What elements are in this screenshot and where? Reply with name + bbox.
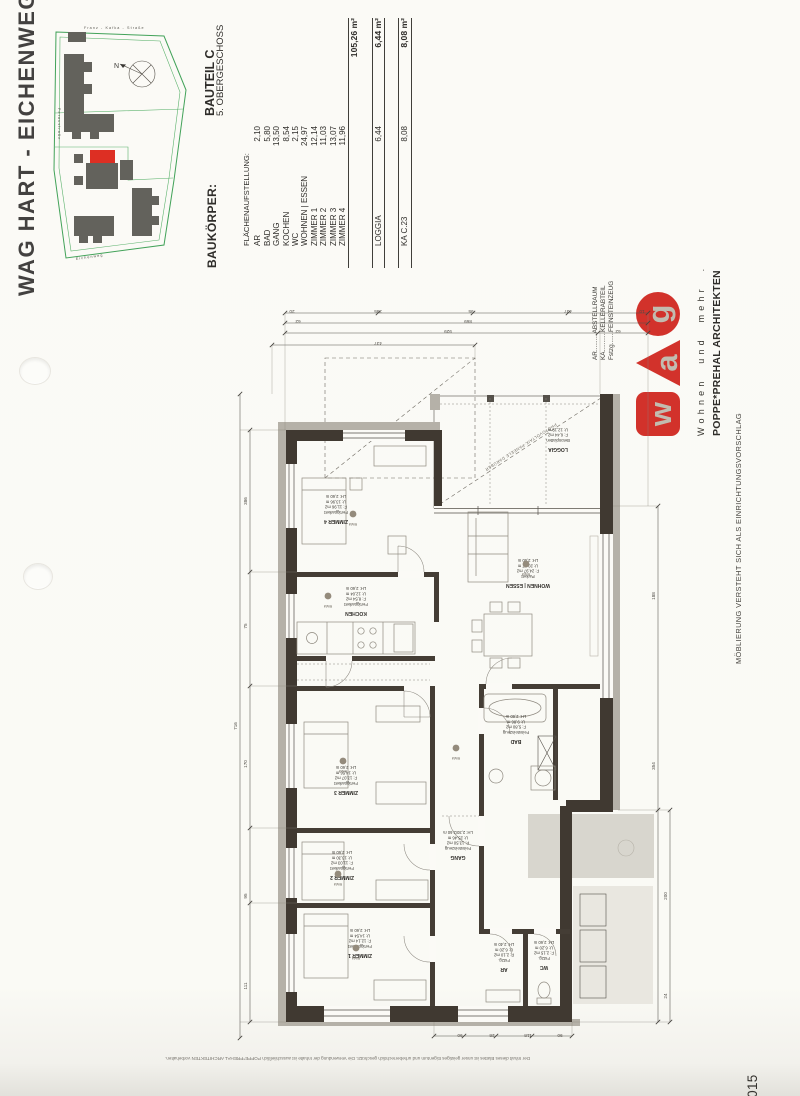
divider [398, 18, 399, 268]
svg-text:929: 929 [444, 329, 452, 334]
svg-text:869: 869 [464, 319, 472, 324]
site-plan: N Franz - Kafka - Straße Peraustraße Eic… [46, 20, 196, 270]
svg-text:RWM: RWM [452, 756, 461, 760]
area-total-row: 105,26 m² [350, 18, 359, 268]
svg-text:386: 386 [243, 497, 248, 505]
room-label-bad: BADFeinsteinzeugF: 5,80 m2U: 9,86 mLH: 2… [502, 714, 529, 744]
street-label: Eichenweg [76, 253, 104, 261]
svg-text:RWM: RWM [334, 882, 343, 886]
svg-text:LH: 2,60 m: LH: 2,60 m [345, 586, 366, 591]
area-row: BAD5,80 [263, 18, 272, 268]
room-label-loggia: LOGGIABetonplattenF: 6,44 m2U: 12,19 m [546, 427, 570, 452]
street-label: Peraustraße [57, 108, 61, 140]
svg-text:10: 10 [639, 309, 645, 314]
svg-text:90: 90 [457, 1033, 463, 1038]
svg-text:LH: 2,40 m: LH: 2,40 m [493, 942, 514, 947]
svg-text:95: 95 [243, 893, 248, 899]
svg-text:24: 24 [663, 993, 668, 999]
site-building [74, 188, 159, 243]
smoke-detector-icon: RWM [452, 745, 461, 760]
area-row: GANG13,50 [272, 18, 281, 268]
footer: ÄNDERUNGEN VORBEHALTEN M=1:75 RAUMFLÄCHE… [732, 1020, 778, 1096]
door-swing [326, 546, 556, 962]
svg-text:75: 75 [243, 623, 248, 629]
svg-text:LH: 2,60 m: LH: 2,60 m [505, 714, 526, 719]
room-label-kochen: KOCHENFertigparkettF: 8,54 m2U: 12,04 mL… [343, 586, 367, 616]
area-total: 105,26 m² [350, 18, 359, 126]
svg-text:ZIMMER 3: ZIMMER 3 [334, 789, 358, 795]
svg-text:RWM: RWM [349, 522, 358, 526]
svg-text:20: 20 [289, 309, 295, 314]
svg-text:LH: 2,60 m: LH: 2,60 m [533, 940, 554, 945]
svg-text:RWM: RWM [339, 769, 348, 773]
svg-text:LH: 2,30/2,60 m: LH: 2,30/2,60 m [443, 830, 473, 835]
room-label-zimmer2: ZIMMER 2FertigparkettF: 11,03 m2U: 13,30… [329, 850, 354, 880]
svg-text:62: 62 [295, 319, 301, 324]
street-label: Franz - Kafka - Straße [84, 26, 145, 30]
svg-text:AR: AR [500, 966, 508, 972]
svg-text:200: 200 [663, 892, 668, 900]
svg-text:188: 188 [651, 592, 656, 600]
punch-hole [19, 357, 51, 385]
stairwell-landing [528, 814, 654, 878]
divider [372, 18, 373, 268]
svg-text:LH: 2,60 m: LH: 2,60 m [331, 850, 352, 855]
punch-hole [23, 563, 53, 590]
svg-text:GANG: GANG [450, 854, 465, 860]
svg-text:LH: 2,60 m: LH: 2,60 m [325, 494, 346, 499]
logo-tagline: Wohnen und mehr . [696, 261, 706, 436]
room-label-gang: GANGFeinsteinzeugF: 13,50 m2U: 25,46 mLH… [443, 830, 473, 860]
site-building [64, 54, 114, 139]
svg-text:28: 28 [489, 1033, 495, 1038]
svg-text:437: 437 [374, 341, 382, 346]
area-row: ZIMMER 112,14 [310, 18, 319, 268]
compass-icon: N [114, 61, 155, 87]
divider [384, 18, 385, 268]
room-label-zimmer1: ZIMMER 1FertigparkettF: 12,14 m2U: 14,54… [347, 928, 372, 958]
furniture [297, 446, 598, 1004]
svg-text:U: 12,19 m: U: 12,19 m [547, 427, 568, 432]
area-row: ZIMMER 411,96 [338, 18, 347, 268]
area-row: ZIMMER 313,07 [329, 18, 338, 268]
area-list-heading: FLÄCHENAUFSTELLUNG: [242, 18, 251, 268]
architect-name: POPPE*PREHAL ARCHITEKTEN [711, 261, 723, 436]
ka-row: KA C.23 8,08 8,08 m² [400, 18, 409, 268]
room-label-zimmer4: ZIMMER 4FertigparkettF: 11,96 m2U: 13,96… [323, 494, 348, 524]
area-row: WC2,15 [291, 18, 300, 268]
svg-text:KOCHEN: KOCHEN [345, 610, 367, 616]
area-row: ZIMMER 211,03 [319, 18, 328, 268]
svg-text:62: 62 [615, 329, 621, 334]
area-rows: AR2,10BAD5,80GANG13,50KOCHEN8,54WC2,15WO… [253, 18, 347, 268]
svg-text:RWM: RWM [324, 604, 333, 608]
canopy-annotation: PHOTOVOLTAIK-PANEELE DARÜBER [484, 422, 558, 472]
bauteil-value: BAUTEIL C [206, 20, 215, 116]
north-label: N [114, 63, 119, 70]
floor-value: 5. OBERGESCHOSS [216, 20, 225, 116]
area-row: KOCHEN8,54 [282, 18, 291, 268]
svg-text:354: 354 [651, 762, 656, 770]
site-building [68, 32, 86, 42]
smoke-detector-icon: RWM [349, 511, 358, 526]
loggia-row: LOGGIA 6,44 6,44 m² [374, 18, 383, 268]
furnishing-note: MÖBLIERUNG VERSTEHT SICH ALS EINRICHTUNG… [734, 360, 743, 664]
svg-text:111: 111 [243, 982, 248, 989]
divider [411, 18, 412, 268]
scanned-sheet: WAG HART - EICHENWEG [0, 0, 800, 1096]
baukoerper-label: BAUKÖRPER: [208, 184, 217, 268]
room-label-wc: WCFstzg.F: 2,15 m2U: 6,20 mLH: 2,60 m [533, 940, 554, 970]
svg-text:LOGGIA: LOGGIA [548, 446, 568, 452]
svg-text:90: 90 [557, 1033, 563, 1038]
page-title: WAG HART - EICHENWEG [14, 54, 40, 296]
copyright-note: Der Inhalt dieses Blattes ist unser geis… [100, 1056, 530, 1061]
site-building-highlighted [74, 150, 133, 189]
floor-plan: PHOTOVOLTAIK-PANEELE DARÜBER [228, 296, 688, 1068]
svg-text:RWM: RWM [352, 956, 361, 960]
smoke-detector-icon: RWM [324, 593, 333, 608]
svg-text:WOHNEN | ESSEN: WOHNEN | ESSEN [506, 582, 550, 588]
svg-text:716: 716 [233, 722, 238, 730]
svg-text:ZIMMER 2: ZIMMER 2 [330, 874, 354, 880]
area-table: BAUKÖRPER: BAUTEIL C 5. OBERGESCHOSS FLÄ… [206, 18, 446, 268]
area-row: AR2,10 [253, 18, 262, 268]
svg-text:LH: 2,60 m: LH: 2,60 m [349, 928, 370, 933]
svg-text:170: 170 [243, 760, 248, 768]
svg-text:WC: WC [539, 964, 548, 970]
svg-text:RWM: RWM [522, 572, 531, 576]
svg-text:BAD: BAD [510, 738, 521, 744]
date: 26.11.2015 [745, 1074, 760, 1096]
area-row: WOHNEN | ESSEN24,97 [300, 18, 309, 268]
svg-text:ZIMMER 4: ZIMMER 4 [324, 518, 348, 524]
room-label-ar: ARFstzg.F: 2,10 m2U: 6,20 mLH: 2,40 m [493, 942, 514, 972]
